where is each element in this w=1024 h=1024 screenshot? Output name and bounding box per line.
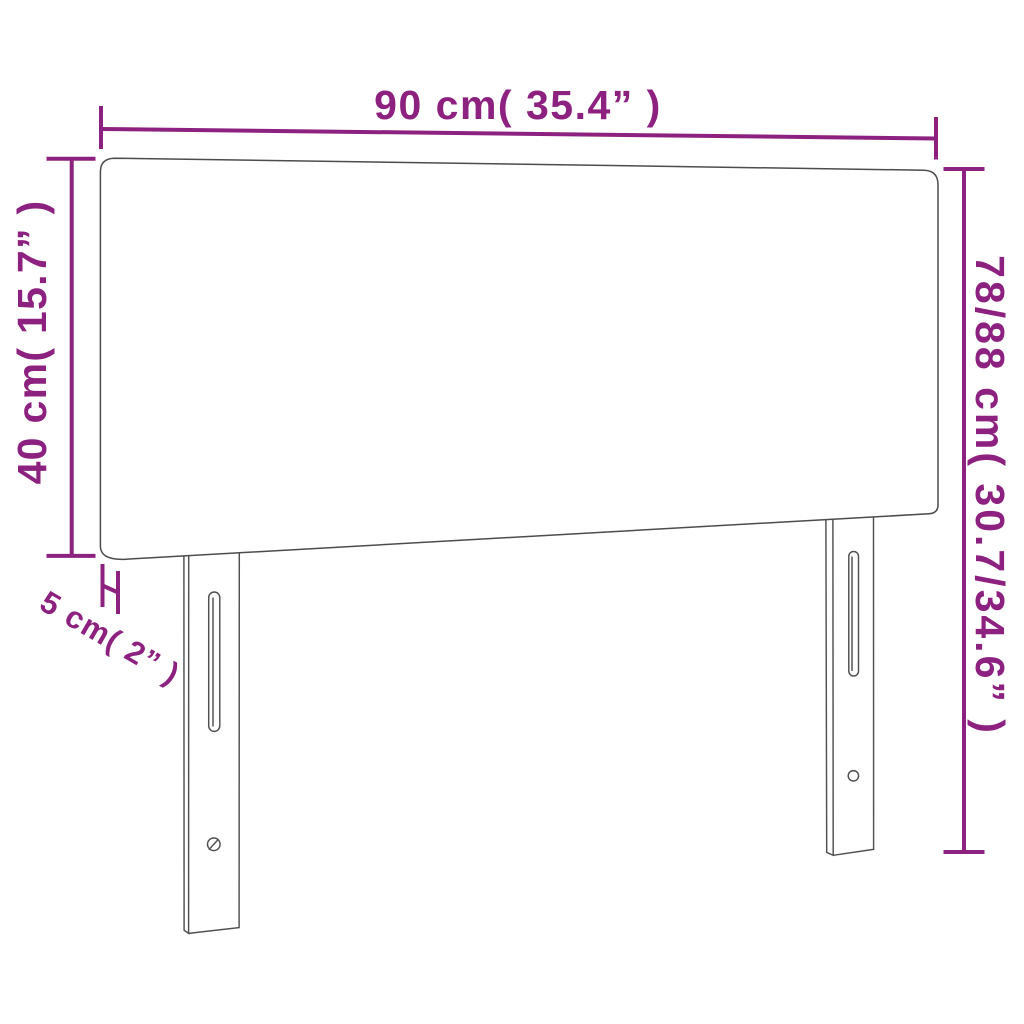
svg-text:78/88 cm( 30.7/34.6” ): 78/88 cm( 30.7/34.6” ) — [967, 255, 1013, 736]
svg-text:40 cm( 15.7” ): 40 cm( 15.7” ) — [9, 200, 55, 485]
svg-text:90 cm( 35.4” ): 90 cm( 35.4” ) — [374, 82, 662, 128]
